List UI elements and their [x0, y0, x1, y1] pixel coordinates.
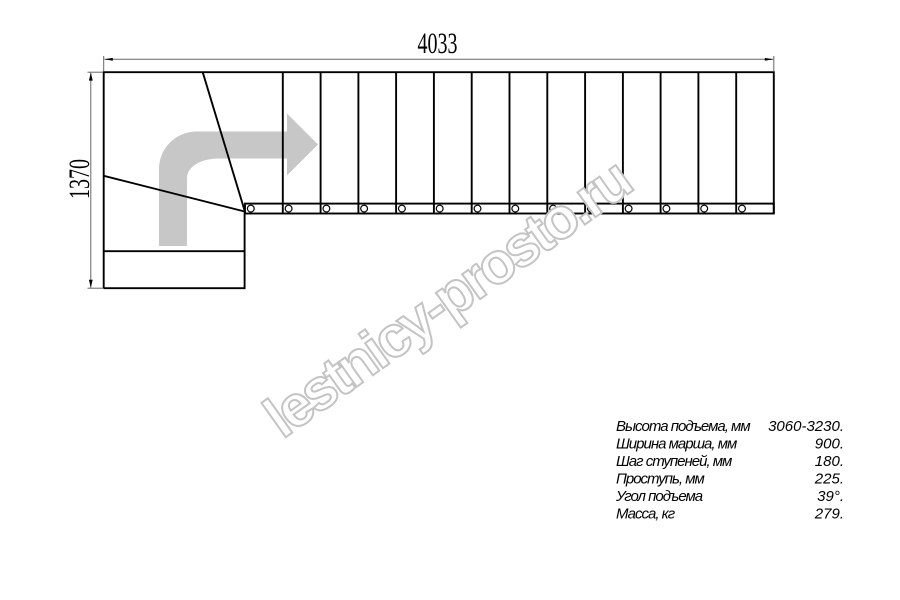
- svg-text:Высота подъема, мм: Высота подъема, мм: [616, 418, 750, 435]
- svg-text:900.: 900.: [815, 436, 844, 453]
- svg-text:180.: 180.: [815, 453, 844, 470]
- svg-text:Угол подъема: Угол подъема: [615, 488, 703, 505]
- svg-text:4033: 4033: [418, 26, 458, 60]
- svg-text:225.: 225.: [814, 471, 844, 488]
- svg-text:Ширина марша, мм: Ширина марша, мм: [616, 436, 737, 453]
- svg-text:Масса, кг: Масса, кг: [616, 506, 676, 523]
- svg-text:3060-3230.: 3060-3230.: [768, 418, 844, 435]
- svg-text:Шаг ступеней, мм: Шаг ступеней, мм: [616, 453, 732, 470]
- svg-text:279.: 279.: [814, 506, 844, 523]
- svg-text:39°.: 39°.: [817, 488, 844, 505]
- svg-text:1370: 1370: [62, 159, 96, 199]
- svg-text:Проступь, мм: Проступь, мм: [616, 471, 704, 488]
